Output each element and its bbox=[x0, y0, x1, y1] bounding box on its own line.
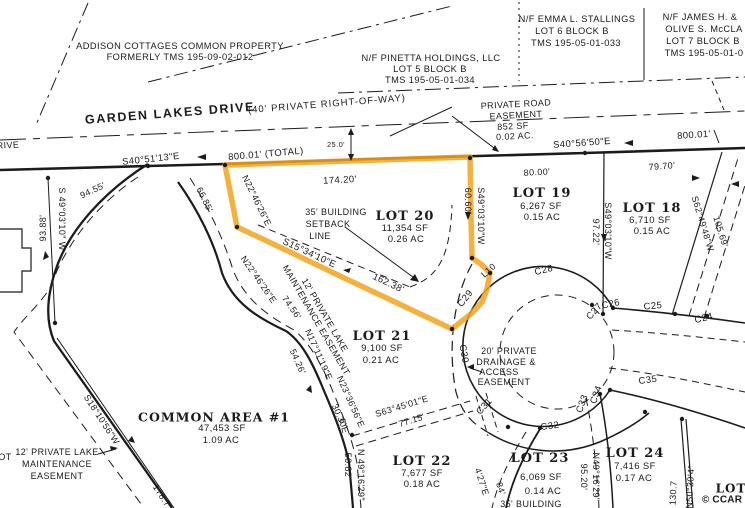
lot21-ac: 0.21 AC bbox=[363, 356, 400, 366]
lake-easement-note-1: 12' PRIVATE LAKE bbox=[15, 448, 98, 458]
lot20-ac: 0.26 AC bbox=[388, 235, 425, 245]
parcel-label-stallings-tms: TMS 195-05-01-033 bbox=[531, 38, 621, 48]
common-area-title: COMMON AREA #1 bbox=[138, 410, 290, 424]
dim-93-88: 93.88' bbox=[39, 215, 49, 242]
lot19-ac: 0.15 AC bbox=[524, 213, 561, 223]
parcel-label-stallings: N/F EMMA L. STALLINGS bbox=[519, 14, 636, 24]
lot18-sf: 6,710 SF bbox=[629, 216, 671, 226]
private-road-easement-4: 0.02 AC. bbox=[496, 131, 534, 143]
label-fragment-ot: OT bbox=[0, 453, 12, 463]
parcel-label-stallings-lot: LOT 6 BLOCK B bbox=[535, 26, 609, 36]
parcel-label-james2: OLIVE S. McCLA bbox=[665, 24, 742, 34]
parcel-label-james-tms: TMS 195-05-01-0 bbox=[665, 48, 744, 58]
lot24-title: LOT 24 bbox=[606, 447, 665, 461]
lot25-fragment: LOT bbox=[716, 483, 745, 496]
plat-map: ADDISON COTTAGES COMMON PROPERTY FORMERL… bbox=[0, 0, 745, 508]
parcel-label-addison-tms: FORMERLY TMS 195-09-02-012 bbox=[107, 52, 254, 62]
dim-50-82: 50.82' bbox=[342, 453, 352, 480]
lot23-sf: 6,069 SF bbox=[520, 473, 562, 483]
parcel-label-pinetta: N/F PINETTA HOLDINGS, LLC bbox=[362, 53, 501, 63]
curve-label-c30: C30 bbox=[456, 344, 469, 364]
lot22-ac: 0.18 AC bbox=[404, 480, 441, 490]
dim-79-70: 79.70' bbox=[648, 161, 675, 173]
bearing-n49-lot22: N 49°16'29" bbox=[355, 449, 365, 501]
bearing-n49-lot23: N49°16'29" bbox=[590, 452, 600, 501]
lot22-sf: 7,677 SF bbox=[401, 469, 443, 479]
dim-97-22: 97.22' bbox=[590, 219, 600, 246]
lot19-title: LOT 19 bbox=[513, 187, 572, 201]
parcel-label-pinetta-tms: TMS 195-05-01-034 bbox=[385, 75, 475, 85]
bearing-s49-lot20: S49°03'10"W bbox=[475, 187, 485, 244]
lot24-ac: 0.17 AC bbox=[616, 474, 653, 484]
ccar-watermark: © CCAR bbox=[702, 496, 742, 507]
parcel-label-james-lot: LOT 7 BLOCK B bbox=[666, 36, 740, 46]
boundary-line bbox=[36, 3, 88, 125]
common-area-sf: 47,453 SF bbox=[198, 424, 245, 434]
bearing-s49-mid: S49°03'10"W bbox=[602, 202, 612, 259]
dim-130-7: 130.7 bbox=[669, 480, 680, 505]
street-line bbox=[613, 308, 745, 323]
setback-note-3: LINE bbox=[309, 232, 331, 242]
lot18-ac: 0.15 AC bbox=[634, 227, 671, 237]
lot23-title: LOT 23 bbox=[511, 452, 570, 466]
dim-174-20: 174.20' bbox=[323, 175, 357, 187]
setback-note-2: SETBACK bbox=[306, 220, 351, 230]
setback-note-1: 35' BUILDING bbox=[305, 208, 367, 218]
road-offset: 25.0' bbox=[327, 141, 345, 149]
curve-label-c25: C25 bbox=[643, 301, 662, 313]
lot23-ac: 0.14 AC bbox=[525, 487, 562, 497]
street-line bbox=[610, 390, 745, 428]
parcel-label-addison: ADDISON COTTAGES COMMON PROPERTY bbox=[76, 41, 284, 51]
street-name-fragment: RIVE bbox=[0, 141, 20, 152]
lot21-sf: 9,100 SF bbox=[361, 344, 403, 354]
parcel-label-james: N/F JAMES H. & bbox=[663, 12, 738, 22]
dim-95-20: 95.20' bbox=[578, 464, 588, 491]
boundary-line bbox=[712, 81, 724, 110]
dim-60-60: 60.60' bbox=[462, 188, 472, 215]
drainage-easement-note-4: EASEMENT bbox=[478, 378, 531, 388]
dim-80-00: 80.00' bbox=[523, 167, 550, 178]
lot24-sf: 7,416 SF bbox=[614, 462, 656, 472]
lot20-highlight bbox=[225, 157, 490, 329]
parcel-label-pinetta-lot: LOT 5 BLOCK B bbox=[393, 64, 467, 74]
bearing-s49-left: S 49°03'10" W bbox=[56, 187, 66, 250]
drainage-easement-note-1: 20' PRIVATE bbox=[481, 347, 537, 357]
lake-easement-note-3: EASEMENT bbox=[31, 472, 84, 482]
lot19-sf: 6,267 SF bbox=[520, 202, 562, 212]
building-footprint bbox=[0, 229, 31, 292]
common-area-ac: 1.09 AC bbox=[203, 436, 240, 446]
lot20-sf: 11,354 SF bbox=[382, 224, 429, 234]
lake-easement-note-2: MAINTENANCE bbox=[22, 460, 92, 470]
lot23-setback-note: 35' BUILDING bbox=[500, 500, 562, 508]
